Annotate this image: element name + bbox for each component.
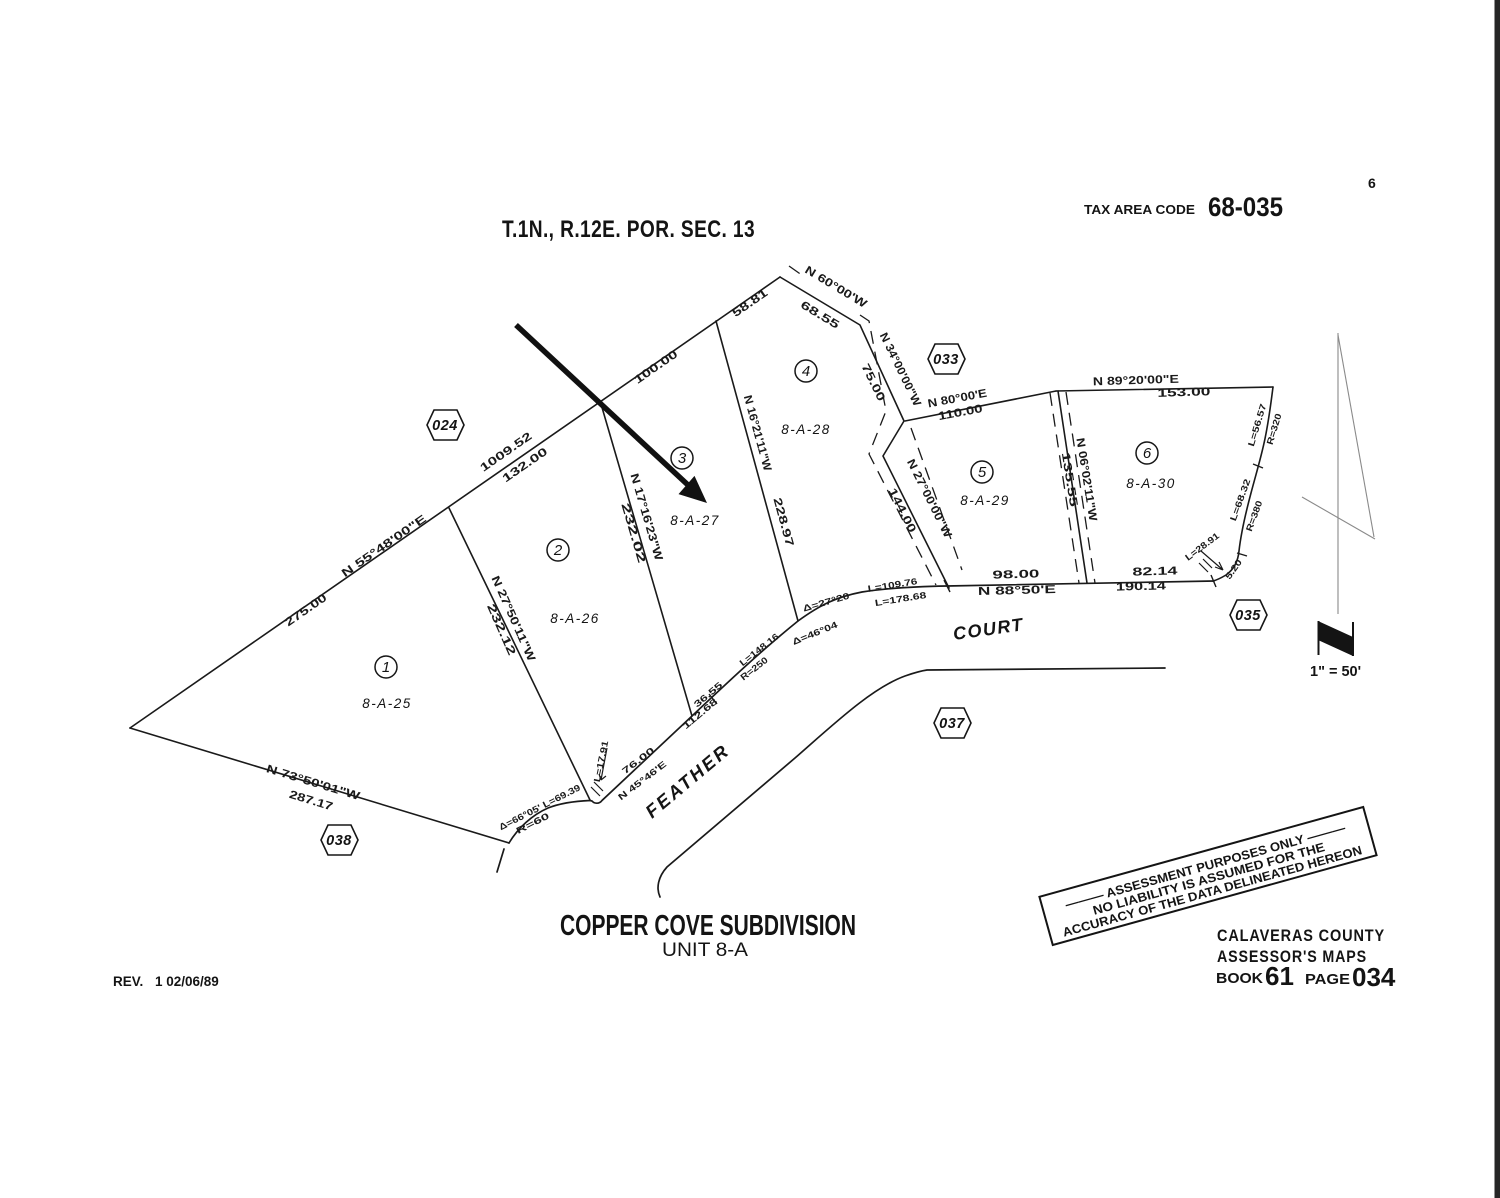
svg-text:REV.: REV. xyxy=(113,974,143,989)
svg-text:CALAVERAS COUNTY: CALAVERAS COUNTY xyxy=(1217,926,1385,945)
svg-text:5: 5 xyxy=(978,464,987,481)
svg-text:034: 034 xyxy=(1352,962,1396,992)
svg-text:N 16°21'11"W: N 16°21'11"W xyxy=(741,394,773,473)
svg-text:UNIT 8-A: UNIT 8-A xyxy=(662,940,748,961)
svg-text:BOOK: BOOK xyxy=(1216,970,1263,987)
svg-text:L=109.76: L=109.76 xyxy=(867,576,918,594)
svg-text:4: 4 xyxy=(802,363,810,380)
svg-text:68.55: 68.55 xyxy=(798,299,842,332)
svg-text:1 02/06/89: 1 02/06/89 xyxy=(155,974,219,989)
svg-text:1" = 50': 1" = 50' xyxy=(1310,664,1361,680)
svg-text:58.81: 58.81 xyxy=(730,287,770,320)
svg-text:TAX AREA CODE: TAX AREA CODE xyxy=(1084,202,1195,217)
svg-text:8-A-28: 8-A-28 xyxy=(781,422,831,437)
svg-text:COURT: COURT xyxy=(952,614,1026,644)
svg-text:8-A-25: 8-A-25 xyxy=(362,696,412,711)
svg-text:N 88°50'E: N 88°50'E xyxy=(978,584,1057,598)
svg-text:035: 035 xyxy=(1235,608,1261,624)
svg-text:68-035: 68-035 xyxy=(1208,192,1283,222)
svg-text:037: 037 xyxy=(939,716,965,732)
svg-text:8-A-26: 8-A-26 xyxy=(550,611,600,626)
svg-text:COPPER COVE SUBDIVISION: COPPER COVE SUBDIVISION xyxy=(560,910,856,942)
svg-text:R=380: R=380 xyxy=(1244,499,1264,532)
svg-text:033: 033 xyxy=(933,352,959,368)
svg-text:N 55°48'00"E: N 55°48'00"E xyxy=(340,513,429,580)
svg-text:Δ=27°20: Δ=27°20 xyxy=(802,591,851,614)
svg-text:75.00: 75.00 xyxy=(859,362,887,403)
svg-text:2: 2 xyxy=(553,542,563,559)
svg-text:6: 6 xyxy=(1143,445,1152,462)
svg-text:275.00: 275.00 xyxy=(283,592,329,629)
svg-text:100.00: 100.00 xyxy=(632,348,680,386)
svg-text:N 89°20'00"E: N 89°20'00"E xyxy=(1093,374,1180,389)
svg-text:153.00: 153.00 xyxy=(1157,386,1210,400)
svg-text:L=17.91: L=17.91 xyxy=(592,740,611,783)
svg-text:Δ=46°04: Δ=46°04 xyxy=(791,620,839,647)
svg-text:N 06°02'11"W: N 06°02'11"W xyxy=(1073,437,1098,522)
svg-text:1: 1 xyxy=(382,659,390,676)
svg-text:98.00: 98.00 xyxy=(992,568,1039,581)
svg-text:82.14: 82.14 xyxy=(1132,565,1178,578)
svg-text:038: 038 xyxy=(326,833,352,849)
svg-text:024: 024 xyxy=(432,418,458,434)
svg-text:PAGE: PAGE xyxy=(1305,971,1350,988)
svg-text:L=178.68: L=178.68 xyxy=(874,590,927,608)
svg-text:228.97: 228.97 xyxy=(771,497,796,548)
svg-text:6: 6 xyxy=(1368,175,1376,191)
svg-text:61: 61 xyxy=(1265,961,1294,991)
svg-text:8-A-29: 8-A-29 xyxy=(960,493,1010,508)
svg-text:190.14: 190.14 xyxy=(1116,580,1167,593)
svg-text:8-A-30: 8-A-30 xyxy=(1126,476,1176,491)
svg-text:L=28.91: L=28.91 xyxy=(1183,531,1221,563)
svg-text:8-A-27: 8-A-27 xyxy=(670,513,720,528)
svg-text:3: 3 xyxy=(678,450,687,467)
svg-text:5.20: 5.20 xyxy=(1223,557,1244,581)
svg-text:T.1N., R.12E. POR. SEC. 13: T.1N., R.12E. POR. SEC. 13 xyxy=(502,216,755,243)
